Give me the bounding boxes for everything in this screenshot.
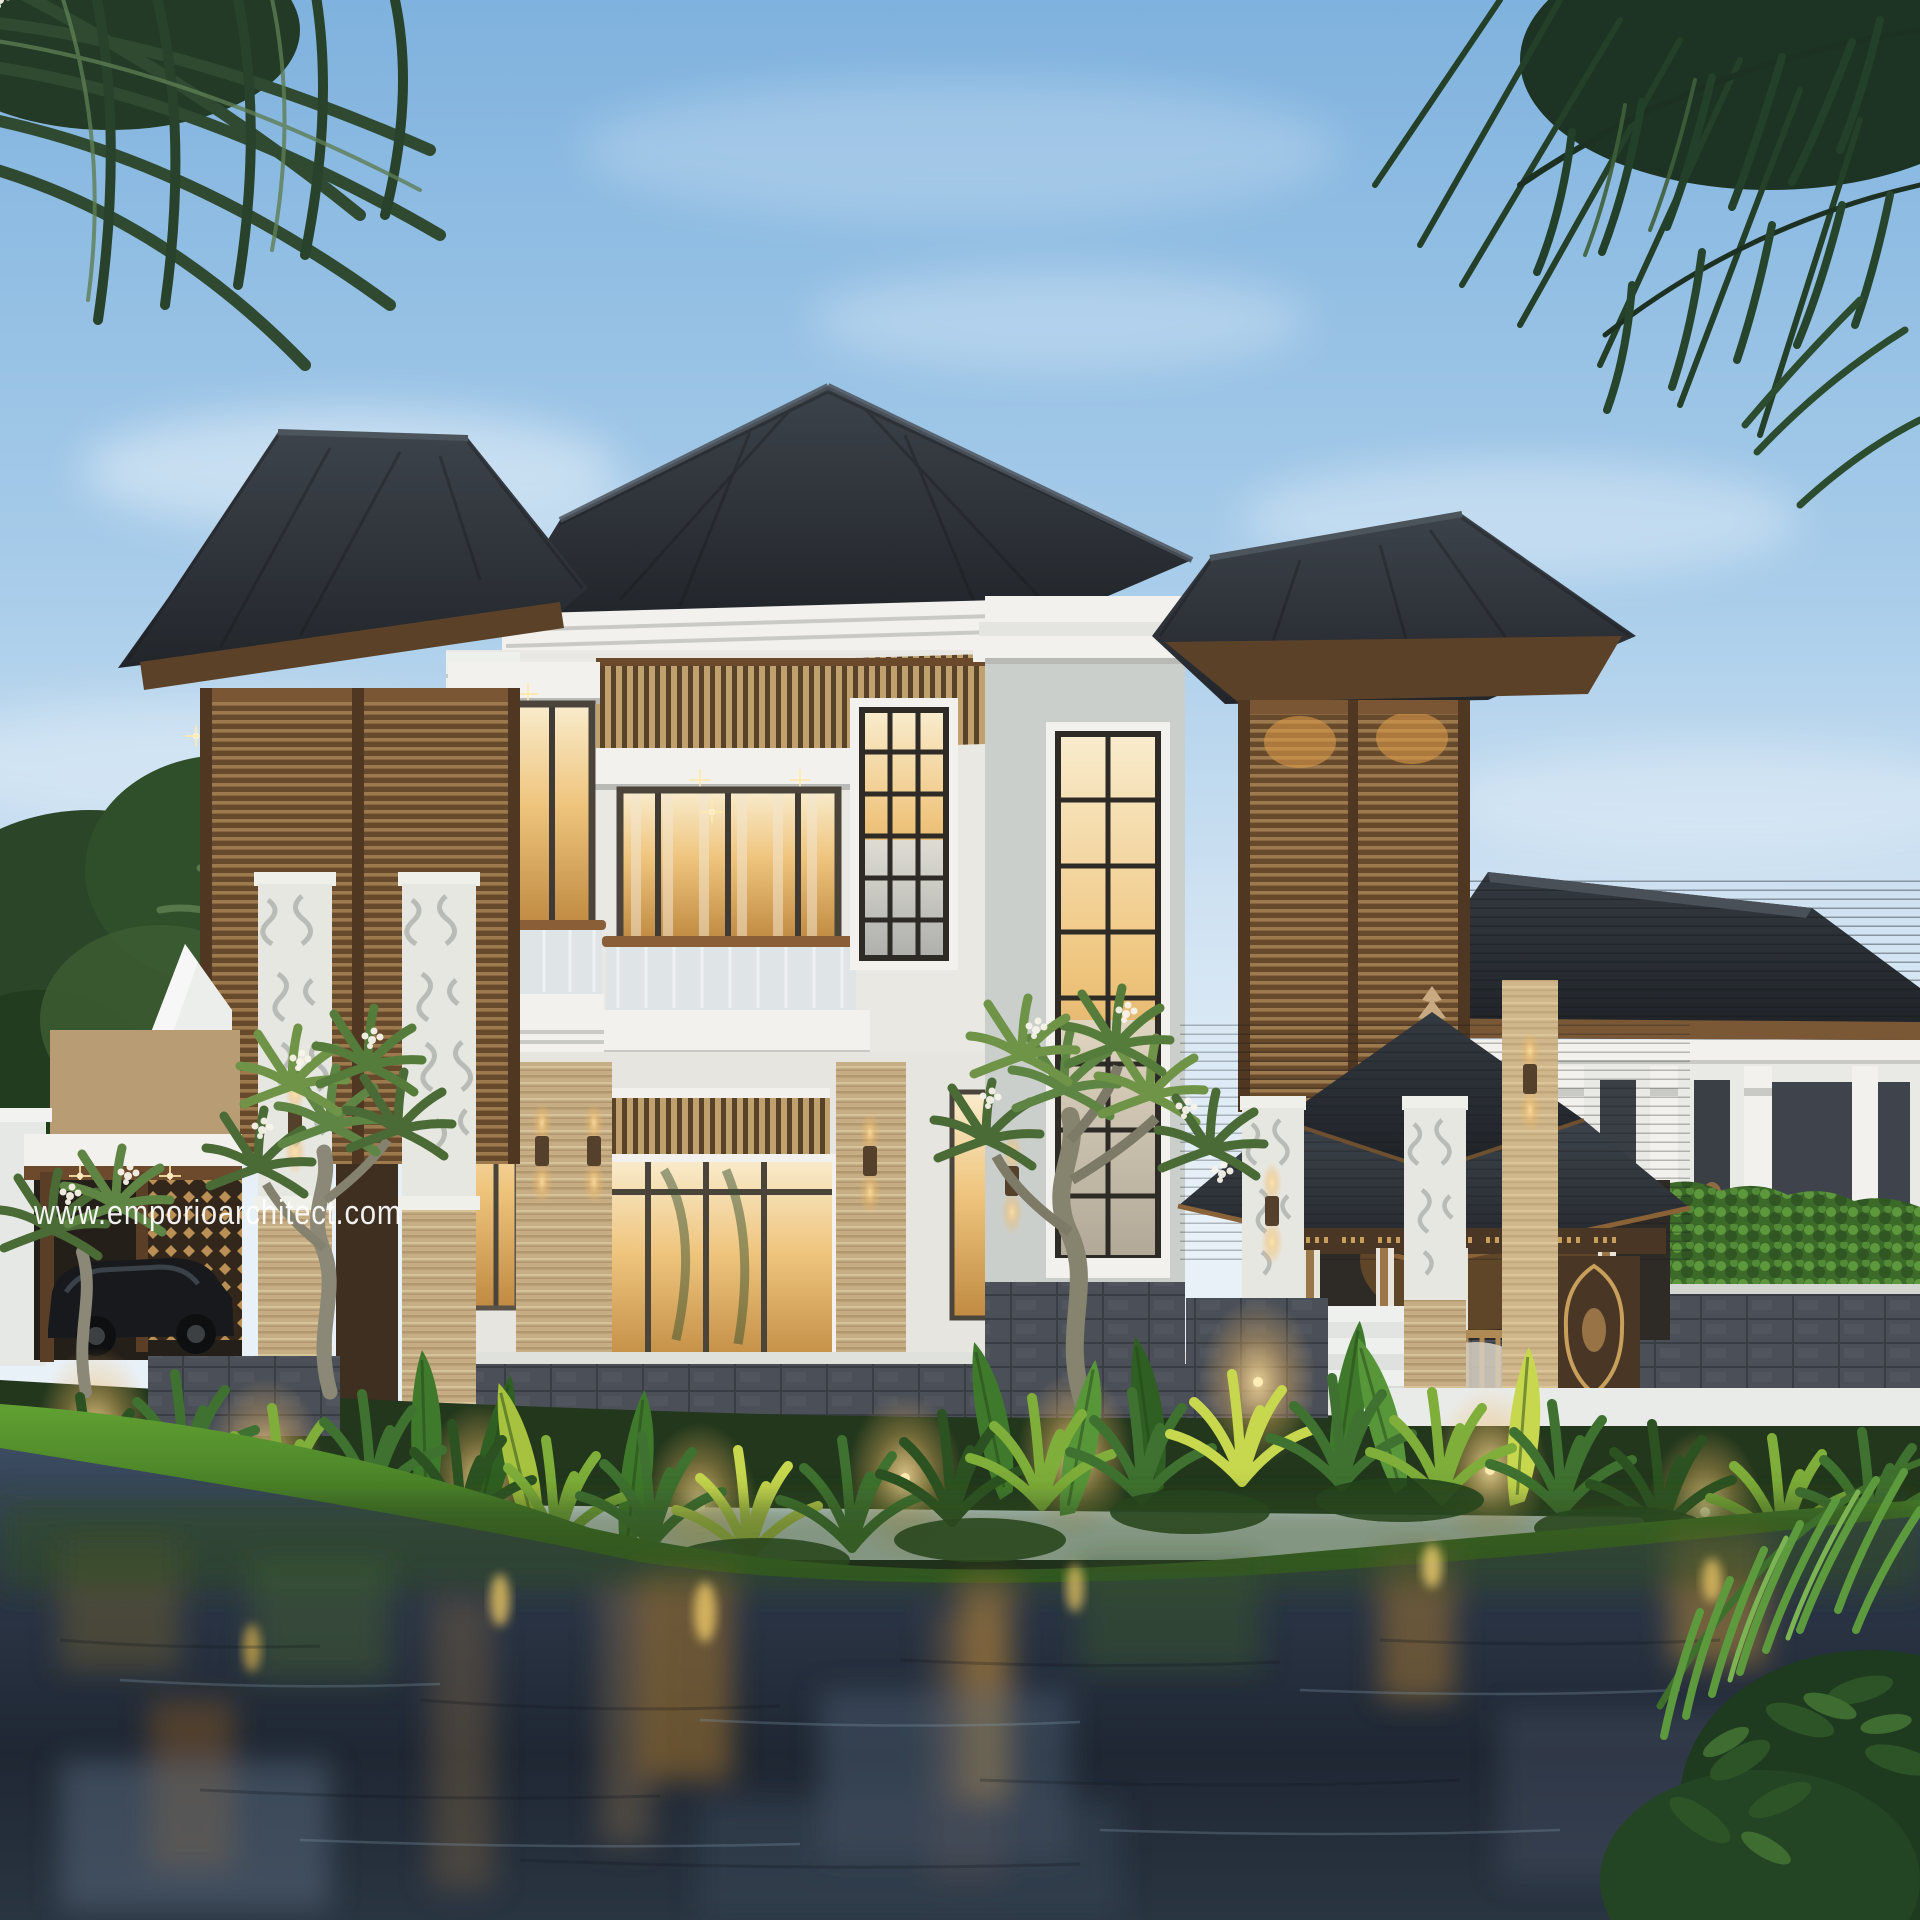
tall-grid-window	[850, 698, 958, 970]
soffit-lamp-glow	[1376, 712, 1448, 764]
watermark-text: www.emporioarchitect.com	[33, 1194, 402, 1232]
ground-slat-band	[596, 1096, 830, 1158]
slat-band-trim	[596, 1088, 830, 1098]
wood-soffit	[1165, 636, 1622, 702]
annex-terrace-opening	[1770, 1082, 1910, 1214]
villa-render-scene: www.emporioarchitect.com	[0, 0, 1920, 1920]
box-post	[508, 688, 520, 1164]
travertine-pier	[836, 1062, 906, 1392]
grid-window-lower	[862, 840, 946, 958]
soffit-lamp-glow	[1264, 716, 1336, 768]
tower-cornice-top	[985, 596, 1185, 626]
trunk	[82, 1252, 87, 1392]
gate-pier-cap	[0, 1108, 52, 1122]
travertine-shaft	[402, 1210, 476, 1410]
capital-cap	[1402, 1096, 1468, 1110]
balcony-canopy	[592, 748, 870, 788]
clerestory-wood-slats	[596, 652, 1050, 756]
cornice-shadow	[985, 658, 1185, 664]
wood-handrail	[602, 936, 860, 947]
carved-capital	[1404, 1108, 1466, 1304]
window-sill	[1046, 1258, 1170, 1276]
capital-cap	[1240, 1096, 1306, 1110]
center-balcony-unit	[592, 748, 870, 1072]
carport-back-wall	[50, 1030, 240, 1142]
gebyok-ornament	[1582, 1308, 1606, 1352]
architectural-render-page: www.emporioarchitect.com	[0, 0, 1920, 1920]
